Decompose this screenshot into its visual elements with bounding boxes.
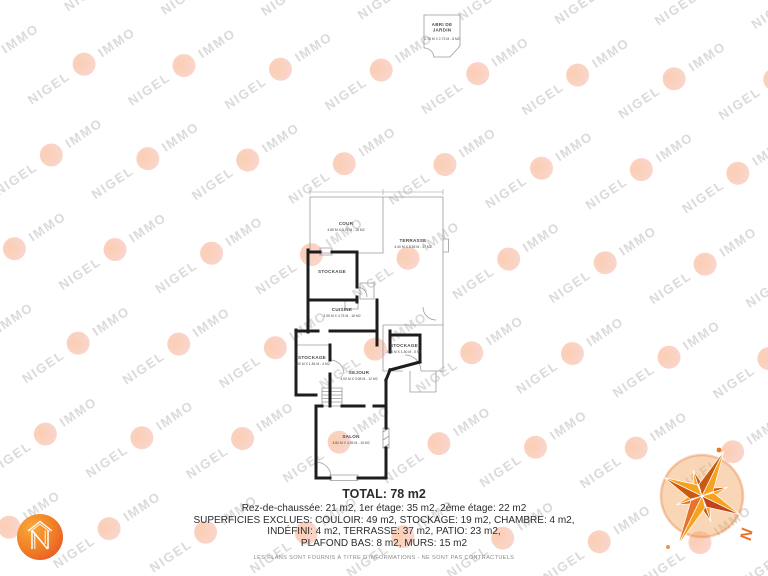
summary-excluded-3: PLAFOND BAS: 8 m2, MURS: 15 m2 <box>0 538 768 550</box>
summary-floors: Rez-de-chaussée: 21 m2, 1er étage: 35 m2… <box>0 503 768 515</box>
summary-excluded-2: INDÉFINI: 4 m2, TERRASSE: 37 m2, PATIO: … <box>0 526 768 538</box>
room-dims-stockage-droit: 2.74 M X 1.80 M - 5 M2 <box>386 350 422 354</box>
summary-total: TOTAL: 78 m2 <box>0 487 768 501</box>
room-label-sejour: SEJOUR <box>349 370 370 375</box>
room-label-salon: SALON <box>342 434 360 439</box>
room-dims-sejour: 4.00 M X 3.08 M - 12 M2 <box>340 377 377 381</box>
room-label-abri: ABRI DE <box>432 22 453 27</box>
room-label-cuisine: CUISINE <box>332 307 352 312</box>
compass-dot-top <box>717 448 722 453</box>
room-dims-abri: 2.78 M X 2.73 M - 8 M2 <box>424 37 460 41</box>
summary-block: TOTAL: 78 m2 Rez-de-chaussée: 21 m2, 1er… <box>0 487 768 561</box>
summary-disclaimer: LES PLANS SONT FOURNIS À TITRE D'INFORMA… <box>0 555 768 561</box>
room-dims-salon: 3.84 M X 4.35 M - 15 M2 <box>332 441 369 445</box>
room-label-terrasse: TERRASSE <box>399 238 426 243</box>
room-labels: ABRI DE JARDIN 2.78 M X 2.73 M - 8 M2 CO… <box>294 22 460 445</box>
room-dims-cuisine: 3.95 M X 4.75 M - 16 M2 <box>323 314 360 318</box>
room-dims-terrasse: 4.40 M X 8.55 M - 37 M2 <box>394 245 431 249</box>
plan-thin-walls <box>310 15 460 392</box>
room-dims-cour: 4.85 M X 3.75 M - 18 M2 <box>327 228 364 232</box>
room-label-stockage-droit: STOCKAGE <box>390 343 418 348</box>
room-label-abri2: JARDIN <box>433 28 452 33</box>
room-label-cour: COUR <box>339 221 354 226</box>
room-label-stockage-gauche: STOCKAGE <box>298 355 326 360</box>
room-label-stockage-haut: STOCKAGE <box>318 269 346 274</box>
page-canvas: NIGELIMMONIGELIMMONIGELIMMONIGELIMMONIGE… <box>0 0 768 576</box>
summary-excluded-1: SUPERFICIES EXCLUES: COULOIR: 49 m2, STO… <box>0 515 768 527</box>
room-dims-stockage-gauche: 2.00 M X 1.84 M - 4 M2 <box>294 362 330 366</box>
